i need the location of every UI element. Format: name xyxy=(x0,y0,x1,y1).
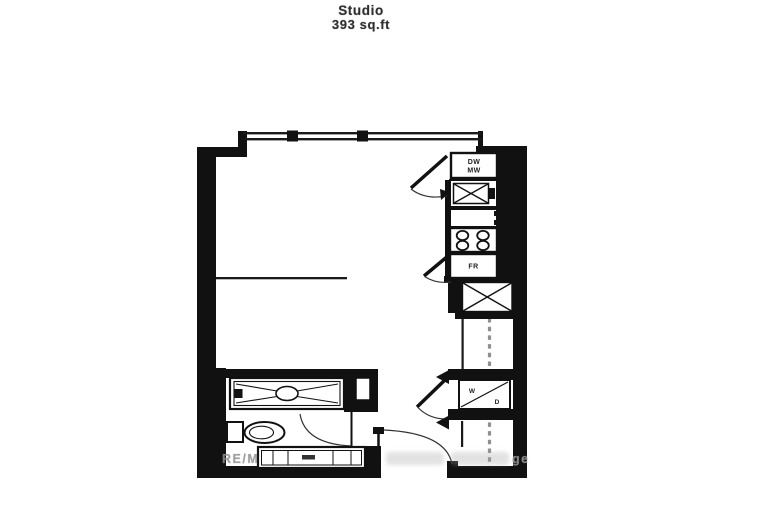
left-wall-upper xyxy=(197,147,216,368)
bathroom-niche xyxy=(356,378,370,400)
window-wall xyxy=(243,131,482,142)
counter-tick-2 xyxy=(494,220,499,225)
kitchen: DW MW FR xyxy=(411,153,499,282)
laundry-bottom-wall xyxy=(448,409,513,420)
dw-label: DW xyxy=(468,159,480,166)
watermark-smudge-1 xyxy=(386,452,444,465)
washer-label: W xyxy=(469,388,476,395)
corridor-wall-line-upper xyxy=(462,319,464,369)
toilet-tank xyxy=(227,422,243,442)
top-left-wall-step xyxy=(238,131,247,157)
bottom-wall-right xyxy=(447,466,527,478)
right-wall-upper xyxy=(496,146,527,282)
corridor-wall-line-lower xyxy=(461,421,463,447)
tub-drain xyxy=(276,387,298,401)
bathroom-door-swing xyxy=(300,414,352,446)
kitchen-top-door-leaf xyxy=(411,156,447,188)
laundry-door-hinge-bottom xyxy=(436,416,449,430)
tub-faucet xyxy=(235,389,243,398)
entry-closet xyxy=(462,282,513,312)
sink-faucet xyxy=(489,188,495,199)
fridge-door-leaf xyxy=(424,256,448,276)
mw-label: MW xyxy=(467,168,480,175)
floorplan-image: Studio 393 sq.ft xyxy=(0,0,760,505)
laundry-door-swing xyxy=(418,407,449,419)
watermark-suffix: ge xyxy=(512,452,530,466)
right-wall-lower xyxy=(513,274,527,478)
vanity-sink-dash xyxy=(302,455,315,460)
laundry-door-leaf xyxy=(417,378,447,407)
entry-closet-left-wall xyxy=(448,282,462,313)
bathroom-south-wall-stub xyxy=(344,400,378,412)
kitchen-counter xyxy=(450,209,497,227)
toilet-bowl xyxy=(245,422,285,443)
window-mullion-2 xyxy=(357,131,368,142)
watermark-prefix: RE/M xyxy=(222,452,259,466)
living-area-counter-line xyxy=(216,277,347,279)
entry-door-cap xyxy=(373,427,384,434)
laundry-top-wall xyxy=(448,369,513,380)
dryer-label: D xyxy=(495,399,500,406)
floorplan-drawing: DW MW FR xyxy=(0,0,760,505)
fridge-label: FR xyxy=(468,264,478,271)
top-left-wall-bar xyxy=(197,147,245,157)
window-mullion-1 xyxy=(287,131,298,142)
watermark-smudge-2 xyxy=(451,452,509,465)
counter-tick-1 xyxy=(494,211,499,216)
